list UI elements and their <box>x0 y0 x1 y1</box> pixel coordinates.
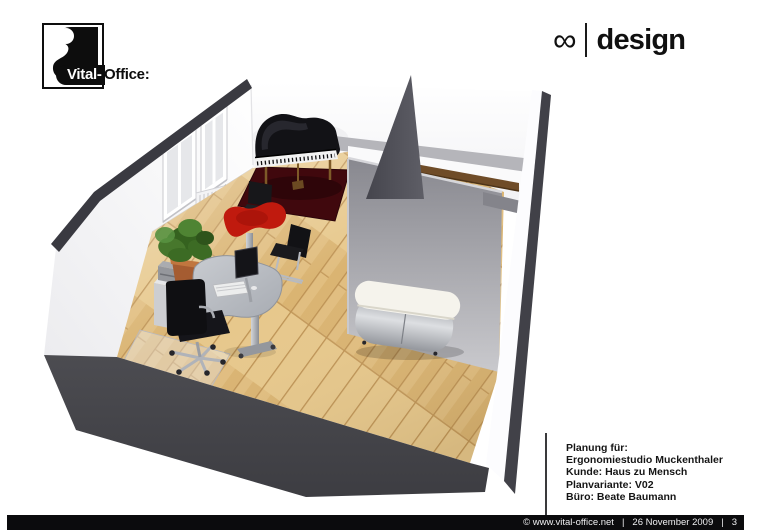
footer-separator: | <box>721 517 723 528</box>
plan-line-customer: Kunde: Haus zu Mensch <box>566 466 723 478</box>
footer-copyright: © www.vital-office.net <box>523 517 614 528</box>
footer-page-number: 3 <box>732 517 737 528</box>
plan-line-project: Ergonomiestudio Muckenthaler <box>566 454 723 466</box>
plan-line-variant: Planvariante: V02 <box>566 479 723 491</box>
footer-separator: | <box>622 517 624 528</box>
plan-info-block: Planung für: Ergonomiestudio Muckenthale… <box>566 442 723 503</box>
footer-date: 26 November 2009 <box>632 517 713 528</box>
plan-line-office: Büro: Beate Baumann <box>566 491 723 503</box>
mouse <box>251 286 257 290</box>
plan-info-divider <box>545 433 547 515</box>
slide: Vital- Office: ∞ design <box>0 0 768 532</box>
footer-bar: © www.vital-office.net|26 November 2009|… <box>7 515 744 530</box>
plan-line-title: Planung für: <box>566 442 723 454</box>
